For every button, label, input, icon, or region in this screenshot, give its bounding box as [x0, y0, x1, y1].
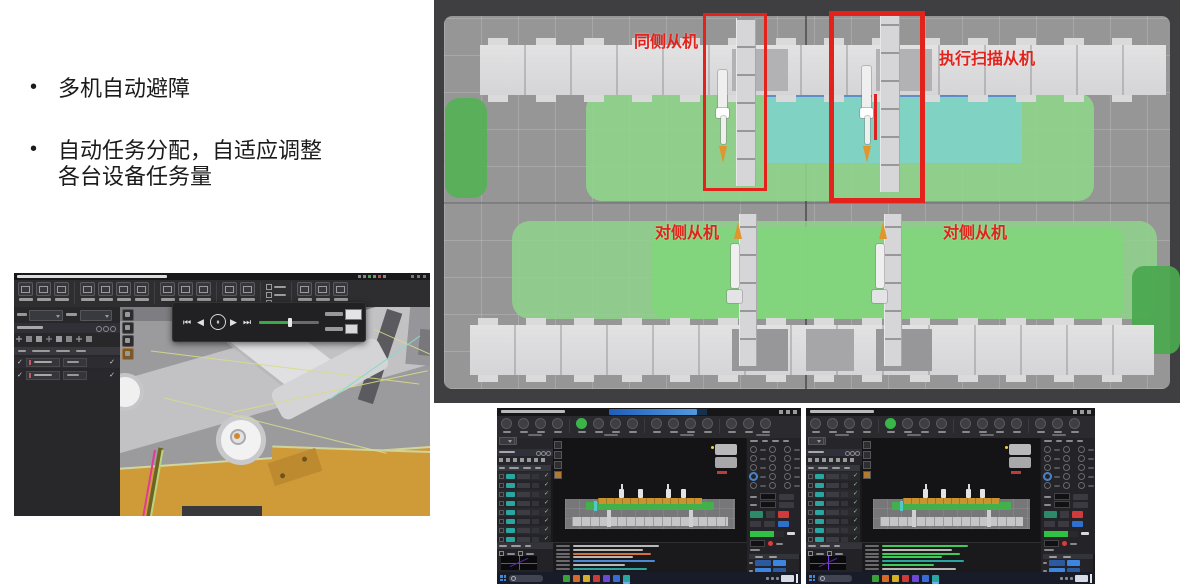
device-row[interactable]: ✓: [497, 481, 551, 489]
ribbon-tool-button[interactable]: [36, 282, 51, 301]
ribbon-group-separator: [154, 282, 155, 304]
titlebar-icon[interactable]: [373, 275, 376, 278]
axis-dash: [760, 485, 766, 487]
taskbar-app-icon[interactable]: [583, 575, 590, 582]
titlebar-icon[interactable]: [383, 275, 386, 278]
ribbon-button-label: [904, 431, 912, 433]
column-header: [18, 350, 26, 352]
axis-radio[interactable]: [1063, 446, 1070, 453]
taskbar-app-icon[interactable]: [932, 575, 939, 582]
section-label-row: [750, 440, 789, 442]
viewport-tool-icon[interactable]: [122, 348, 134, 360]
taskbar-app-icon[interactable]: [593, 575, 600, 582]
coords-value-pill[interactable]: [773, 560, 786, 566]
axis-radio[interactable]: [784, 446, 791, 453]
taskbar-app-icon[interactable]: [922, 575, 929, 582]
row-checkbox[interactable]: [808, 537, 813, 542]
ribbon-button[interactable]: [960, 418, 971, 433]
taskbar-app-icon[interactable]: [623, 575, 630, 582]
ribbon-icon: [844, 418, 855, 429]
panel-tool-icon[interactable]: [46, 336, 52, 342]
panel-tool-icon[interactable]: [499, 458, 503, 462]
device-state-cell: [841, 483, 848, 488]
ribbon-button[interactable]: [610, 418, 621, 433]
titlebar-icon[interactable]: [378, 275, 381, 278]
taskbar-app-icon[interactable]: [563, 575, 570, 582]
small-button[interactable]: [779, 494, 794, 500]
windows-start-button[interactable]: [500, 575, 506, 581]
axis-radio[interactable]: [1078, 473, 1085, 480]
record-input[interactable]: [1044, 540, 1059, 547]
ribbon-button[interactable]: [760, 418, 771, 433]
ribbon-button[interactable]: [743, 418, 754, 433]
device-type-badge: [815, 528, 824, 533]
stop-button[interactable]: [778, 511, 789, 518]
ribbon-group-labels: [806, 434, 1095, 436]
taskbar-app-icon[interactable]: [912, 575, 919, 582]
panel-tool-icon[interactable]: [36, 336, 42, 342]
value-input[interactable]: [760, 501, 776, 508]
axis-radio[interactable]: [750, 455, 757, 462]
panel-tool-icon[interactable]: [815, 458, 819, 462]
panel-header-icon[interactable]: [541, 451, 546, 456]
viewport-tool-icon[interactable]: [554, 451, 562, 459]
ribbon-tool-button[interactable]: [297, 282, 312, 301]
coords-value-pill[interactable]: [1067, 560, 1080, 566]
device-row[interactable]: ✓: [806, 472, 860, 480]
viewport-tool-icon[interactable]: [122, 335, 134, 347]
axis-radio[interactable]: [1078, 446, 1085, 453]
connect-status-icon: [576, 418, 587, 429]
stop-button[interactable]: [1072, 511, 1083, 518]
small-button[interactable]: [1073, 502, 1088, 508]
panel-tool-icon[interactable]: [527, 458, 531, 462]
axis-control-row: [750, 455, 801, 462]
ribbon-icon: [1035, 418, 1046, 429]
axis-dash: [760, 449, 766, 451]
row-checkbox[interactable]: [499, 474, 504, 479]
legend-button[interactable]: [715, 444, 737, 455]
axis-radio[interactable]: [784, 455, 791, 462]
axis-radio[interactable]: [1078, 464, 1085, 471]
ribbon-button[interactable]: [685, 418, 696, 433]
device-row[interactable]: ✓: [497, 508, 551, 516]
window-controls[interactable]: [411, 275, 426, 278]
tool-glyph: [300, 286, 309, 293]
titlebar-icon[interactable]: [358, 275, 361, 278]
legend-button[interactable]: [1009, 457, 1031, 468]
taskbar-app-icon[interactable]: [882, 575, 889, 582]
coords-value-pill[interactable]: [755, 560, 771, 566]
action-button[interactable]: [766, 511, 775, 518]
checkbox[interactable]: [266, 284, 272, 290]
panel-header-icon[interactable]: [546, 451, 551, 456]
ribbon-button[interactable]: [1035, 418, 1046, 433]
panel-header-icon[interactable]: [845, 451, 850, 456]
monitor-window-right: ✓✓✓✓✓✓✓✓✓: [806, 408, 1095, 584]
value-input[interactable]: [1054, 493, 1070, 500]
input-label: [750, 496, 757, 498]
panel-tool-icon[interactable]: [822, 458, 826, 462]
taskbar-app-icon[interactable]: [573, 575, 580, 582]
row-checkbox[interactable]: [808, 474, 813, 479]
ribbon-tool-button[interactable]: [178, 282, 193, 301]
panel-tool-icon[interactable]: [66, 336, 72, 342]
ribbon-button[interactable]: [593, 418, 604, 433]
viewport-tool-icon[interactable]: [554, 441, 562, 449]
log-line: [865, 549, 952, 551]
panel-header-icon[interactable]: [536, 451, 541, 456]
axis-radio[interactable]: [1063, 473, 1070, 480]
task-param-text: [67, 374, 79, 376]
row-checkbox[interactable]: [808, 501, 813, 506]
axis-radio[interactable]: [769, 473, 776, 480]
device-row[interactable]: ✓: [806, 517, 860, 525]
search-icon: [820, 576, 825, 581]
ribbon-button[interactable]: [668, 418, 679, 433]
play-button[interactable]: ▶: [230, 318, 237, 327]
axis-radio[interactable]: [1078, 455, 1085, 462]
panel-header-icon[interactable]: [110, 326, 116, 332]
small-button[interactable]: [779, 502, 794, 508]
close-button[interactable]: [779, 410, 783, 414]
task-color-tick: [29, 360, 31, 365]
row-checkbox[interactable]: [808, 519, 813, 524]
panel-tool-icon[interactable]: [541, 458, 545, 462]
playrate-input[interactable]: [345, 324, 358, 334]
ribbon-button[interactable]: [627, 418, 638, 433]
ribbon-tool-button[interactable]: [116, 282, 131, 301]
task-row[interactable]: ✓✓: [14, 370, 120, 381]
axis-radio[interactable]: [769, 464, 776, 471]
ribbon-tool-button[interactable]: [18, 282, 33, 301]
mode-select[interactable]: [808, 437, 824, 445]
panel-header-icon[interactable]: [855, 451, 860, 456]
device-row[interactable]: ✓: [806, 508, 860, 516]
coords-value-pill[interactable]: [1049, 560, 1065, 566]
ribbon-tool-button[interactable]: [134, 282, 149, 301]
panel-tool-icon[interactable]: [76, 336, 82, 342]
axis-radio[interactable]: [750, 446, 757, 453]
panel-tool-icon[interactable]: [56, 336, 62, 342]
taskbar-app-icon[interactable]: [872, 575, 879, 582]
mode-select[interactable]: [80, 310, 112, 321]
action-button[interactable]: [764, 521, 775, 527]
axis-radio[interactable]: [1063, 482, 1070, 489]
axis-radio[interactable]: [784, 464, 791, 471]
ribbon-tool-button[interactable]: [240, 282, 255, 301]
windows-start-button[interactable]: [809, 575, 815, 581]
minimize-button[interactable]: [411, 275, 414, 278]
row-checkbox[interactable]: [499, 501, 504, 506]
ribbon-button-label: [595, 431, 603, 433]
primary-button[interactable]: [778, 521, 789, 527]
viewport-tool-icon[interactable]: [122, 322, 134, 334]
show-desktop-button[interactable]: [1090, 574, 1092, 583]
checkbox[interactable]: [266, 292, 272, 298]
ribbon-button[interactable]: [861, 418, 872, 433]
axis-radio[interactable]: [769, 446, 776, 453]
ribbon-button[interactable]: [844, 418, 855, 433]
axis-radio[interactable]: [1044, 464, 1051, 471]
device-type-badge: [506, 474, 515, 479]
slider-thumb[interactable]: [288, 318, 292, 327]
device-row[interactable]: ✓: [497, 499, 551, 507]
row-checkbox[interactable]: [499, 537, 504, 542]
panel-tool-icon[interactable]: [26, 336, 32, 342]
start-button[interactable]: [1044, 511, 1057, 518]
scope-crosshair-h: [501, 563, 537, 564]
viewport-tool-icon[interactable]: [863, 451, 871, 459]
panel-header-icon[interactable]: [96, 326, 102, 332]
row-enabled-check[interactable]: ✓: [109, 372, 115, 379]
ribbon-button[interactable]: [726, 418, 737, 433]
panel-scrollbar[interactable]: [1093, 554, 1095, 572]
ribbon-button[interactable]: [501, 418, 512, 433]
viewport-tool-icon[interactable]: [863, 461, 871, 469]
device-type-badge: [815, 474, 824, 479]
ribbon-button-label: [503, 431, 511, 433]
panel-tool-icon[interactable]: [843, 458, 847, 462]
axis-radio[interactable]: [1044, 482, 1051, 489]
primary-button[interactable]: [1072, 521, 1083, 527]
panel-tool-icon[interactable]: [836, 458, 840, 462]
action-button[interactable]: [1058, 521, 1069, 527]
section-label: [783, 440, 789, 442]
close-button[interactable]: [1073, 410, 1077, 414]
minimize-button[interactable]: [793, 410, 797, 414]
mode-select[interactable]: [499, 437, 515, 445]
panel-tool-icon[interactable]: [850, 458, 854, 462]
robot-sim-app-screenshot: ✓✓✓✓ ⏮ ◀ ⏸ ▶ ⏭: [14, 273, 430, 516]
label-scanning-slave: 执行扫描从机: [939, 45, 1035, 69]
axis-radio[interactable]: [1063, 455, 1070, 462]
action-button[interactable]: [1060, 511, 1069, 518]
tool-glyph: [336, 286, 345, 293]
axis-radio[interactable]: [784, 482, 791, 489]
panel-toolbar: [499, 458, 545, 462]
axis-radio[interactable]: [769, 482, 776, 489]
bullet-list: • 多机自动避障 • 自动任务分配，自适应调整 各台设备任务量: [24, 76, 424, 190]
record-input[interactable]: [750, 540, 765, 547]
taskbar-app-icon[interactable]: [603, 575, 610, 582]
ribbon-button[interactable]: [518, 418, 529, 433]
value-input[interactable]: [760, 493, 776, 500]
action-button[interactable]: [1044, 521, 1055, 527]
legend-button[interactable]: [1009, 444, 1031, 455]
coords-row-label: [1043, 562, 1047, 564]
panel-tool-icon[interactable]: [16, 336, 22, 342]
row-checkbox[interactable]: [499, 528, 504, 533]
ribbon-tool-button[interactable]: [160, 282, 175, 301]
axis-control-row: [750, 446, 801, 453]
bullet-text-2-line1: 自动任务分配，自适应调整: [58, 138, 322, 163]
ribbon-button[interactable]: [1052, 418, 1063, 433]
ribbon-button[interactable]: [827, 418, 838, 433]
step-back-button[interactable]: ◀: [197, 318, 204, 327]
log-message: [882, 560, 964, 562]
monitor-right-panel: [746, 438, 801, 572]
ribbon-button[interactable]: [1069, 418, 1080, 433]
ribbon-tool-button[interactable]: [98, 282, 113, 301]
tool-glyph: [57, 286, 66, 293]
ribbon-button[interactable]: [1011, 418, 1022, 433]
viewport-tool-icon[interactable]: [863, 471, 871, 479]
opposite-robot-arm: [876, 244, 884, 288]
device-row[interactable]: ✓: [806, 499, 860, 507]
tool-icon: [80, 282, 95, 296]
row-enabled-check[interactable]: ✓: [109, 359, 115, 366]
skip-end-button[interactable]: ⏭: [243, 318, 251, 327]
ribbon-button[interactable]: [885, 418, 896, 433]
row-online-check: ✓: [544, 491, 549, 497]
device-id-cell: [517, 519, 530, 524]
log-timestamp: [556, 545, 570, 547]
minimize-button[interactable]: [1087, 410, 1091, 414]
close-button[interactable]: [423, 275, 426, 278]
panel-tool-icon[interactable]: [534, 458, 538, 462]
panel-tool-icon[interactable]: [506, 458, 510, 462]
tool-glyph: [181, 286, 190, 293]
maximize-button[interactable]: [1080, 410, 1084, 414]
axis-radio[interactable]: [769, 455, 776, 462]
action-button[interactable]: [750, 521, 761, 527]
log-timestamp: [865, 549, 879, 551]
log-console[interactable]: [862, 542, 1041, 572]
row-checkbox[interactable]: [499, 492, 504, 497]
axis-radio[interactable]: [784, 473, 791, 480]
titlebar-icon[interactable]: [363, 275, 366, 278]
equipment-box: [405, 307, 430, 370]
opposite-robot-arm: [731, 244, 739, 288]
row-checkbox[interactable]: [499, 510, 504, 515]
panel-tool-icon[interactable]: [86, 336, 92, 342]
taskbar-app-icon[interactable]: [613, 575, 620, 582]
ribbon-button-label: [554, 431, 562, 433]
device-row[interactable]: ✓: [806, 526, 860, 534]
ribbon-tool-button[interactable]: [222, 282, 237, 301]
ribbon-button[interactable]: [919, 418, 930, 433]
legend-button[interactable]: [715, 457, 737, 468]
row-checkbox[interactable]: [499, 519, 504, 524]
device-row[interactable]: ✓: [497, 517, 551, 525]
tool-glyph: [39, 286, 48, 293]
titlebar-icon[interactable]: [368, 275, 371, 278]
ribbon-button[interactable]: [810, 418, 821, 433]
panel-scrollbar[interactable]: [799, 554, 801, 572]
panel-header-icon[interactable]: [103, 326, 109, 332]
ribbon-button[interactable]: [651, 418, 662, 433]
panel-tool-icon[interactable]: [513, 458, 517, 462]
device-row[interactable]: ✓: [806, 481, 860, 489]
axis-control-row: [1044, 473, 1095, 480]
axis-radio[interactable]: [1044, 473, 1051, 480]
ribbon-button[interactable]: [576, 418, 587, 433]
axis-radio[interactable]: [1044, 455, 1051, 462]
maximize-button[interactable]: [786, 410, 790, 414]
log-console[interactable]: [553, 542, 747, 572]
viewport-tool-icon[interactable]: [554, 461, 562, 469]
row-checkbox[interactable]: [808, 483, 813, 488]
show-desktop-button[interactable]: [796, 574, 798, 583]
device-row[interactable]: ✓: [806, 490, 860, 498]
tool-glyph: [163, 286, 172, 293]
taskbar-search-box[interactable]: [509, 575, 543, 582]
ribbon-tool-button[interactable]: [333, 282, 348, 301]
ribbon-tool-button[interactable]: [80, 282, 95, 301]
ribbon-button[interactable]: [902, 418, 913, 433]
row-online-check: ✓: [853, 482, 858, 488]
axis-radio[interactable]: [1078, 482, 1085, 489]
device-row[interactable]: ✓: [497, 526, 551, 534]
axis-radio[interactable]: [750, 482, 757, 489]
start-button[interactable]: [750, 511, 763, 518]
group-label: [756, 434, 770, 436]
ribbon-button-label: [670, 431, 678, 433]
ribbon-tool-button[interactable]: [315, 282, 330, 301]
viewport-tool-icon[interactable]: [863, 441, 871, 449]
taskbar-app-icon[interactable]: [892, 575, 899, 582]
axis-radio[interactable]: [1044, 446, 1051, 453]
mini-panel-header: [497, 543, 553, 549]
ribbon-button-label: [520, 431, 528, 433]
viewport-tool-icon[interactable]: [554, 471, 562, 479]
ribbon-button[interactable]: [552, 418, 563, 433]
panel-tool-icon[interactable]: [520, 458, 524, 462]
task-row[interactable]: ✓✓: [14, 357, 120, 368]
tool-label: [197, 298, 211, 301]
skip-start-button[interactable]: ⏮: [183, 318, 191, 327]
small-button[interactable]: [1073, 494, 1088, 500]
monitor-3d-viewport[interactable]: [862, 438, 1041, 543]
ribbon-button[interactable]: [994, 418, 1005, 433]
mini-header-label: [834, 545, 840, 547]
axis-radio[interactable]: [1063, 464, 1070, 471]
axis-radio[interactable]: [750, 473, 757, 480]
row-checkbox[interactable]: [499, 483, 504, 488]
row-checkbox[interactable]: [808, 528, 813, 533]
ribbon-tool-button[interactable]: [54, 282, 69, 301]
device-row[interactable]: ✓: [497, 490, 551, 498]
viewport-tool-icon[interactable]: [122, 309, 134, 321]
taskbar-app-icon[interactable]: [902, 575, 909, 582]
ribbon-button[interactable]: [977, 418, 988, 433]
value-input[interactable]: [1054, 501, 1070, 508]
panel-tool-icon[interactable]: [808, 458, 812, 462]
axis-radio[interactable]: [750, 464, 757, 471]
maximize-button[interactable]: [417, 275, 420, 278]
ribbon-button[interactable]: [936, 418, 947, 433]
ribbon-button[interactable]: [702, 418, 713, 433]
panel-tool-icon[interactable]: [829, 458, 833, 462]
ribbon-separator: [719, 419, 720, 433]
monitor-3d-viewport[interactable]: [553, 438, 747, 543]
row-online-check: ✓: [544, 518, 549, 524]
row-checkbox[interactable]: [808, 492, 813, 497]
device-row[interactable]: ✓: [497, 472, 551, 480]
timeline-slider[interactable]: [259, 321, 319, 324]
log-message: [573, 553, 651, 555]
device-state-cell: [532, 519, 539, 524]
row-checkbox[interactable]: [808, 510, 813, 515]
scene-select[interactable]: [29, 310, 63, 321]
panel-header-icon[interactable]: [850, 451, 855, 456]
ribbon-tool-button[interactable]: [196, 282, 211, 301]
pause-button[interactable]: ⏸: [210, 314, 226, 330]
taskbar-search-box[interactable]: [818, 575, 852, 582]
ribbon-button[interactable]: [535, 418, 546, 433]
speed-input[interactable]: [345, 309, 362, 320]
